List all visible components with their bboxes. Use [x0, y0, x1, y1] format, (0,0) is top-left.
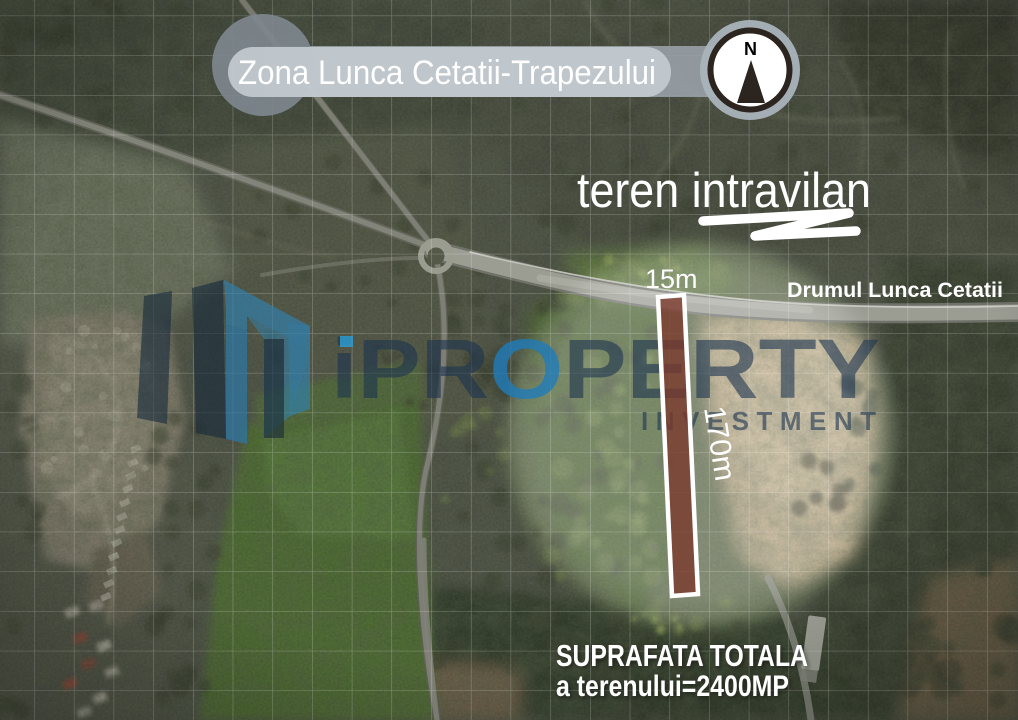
svg-text:iPROPERTY: iPROPERTY — [331, 322, 880, 416]
svg-text:Zona Lunca Cetatii-Trapezului: Zona Lunca Cetatii-Trapezului — [238, 54, 656, 92]
svg-text:a terenului=2400MP: a terenului=2400MP — [556, 670, 789, 703]
svg-text:Drumul Lunca Cetatii: Drumul Lunca Cetatii — [787, 279, 1003, 302]
svg-text:SUPRAFATA TOTALA: SUPRAFATA TOTALA — [556, 638, 808, 673]
svg-text:N: N — [744, 39, 757, 59]
svg-text:15m: 15m — [645, 264, 698, 294]
